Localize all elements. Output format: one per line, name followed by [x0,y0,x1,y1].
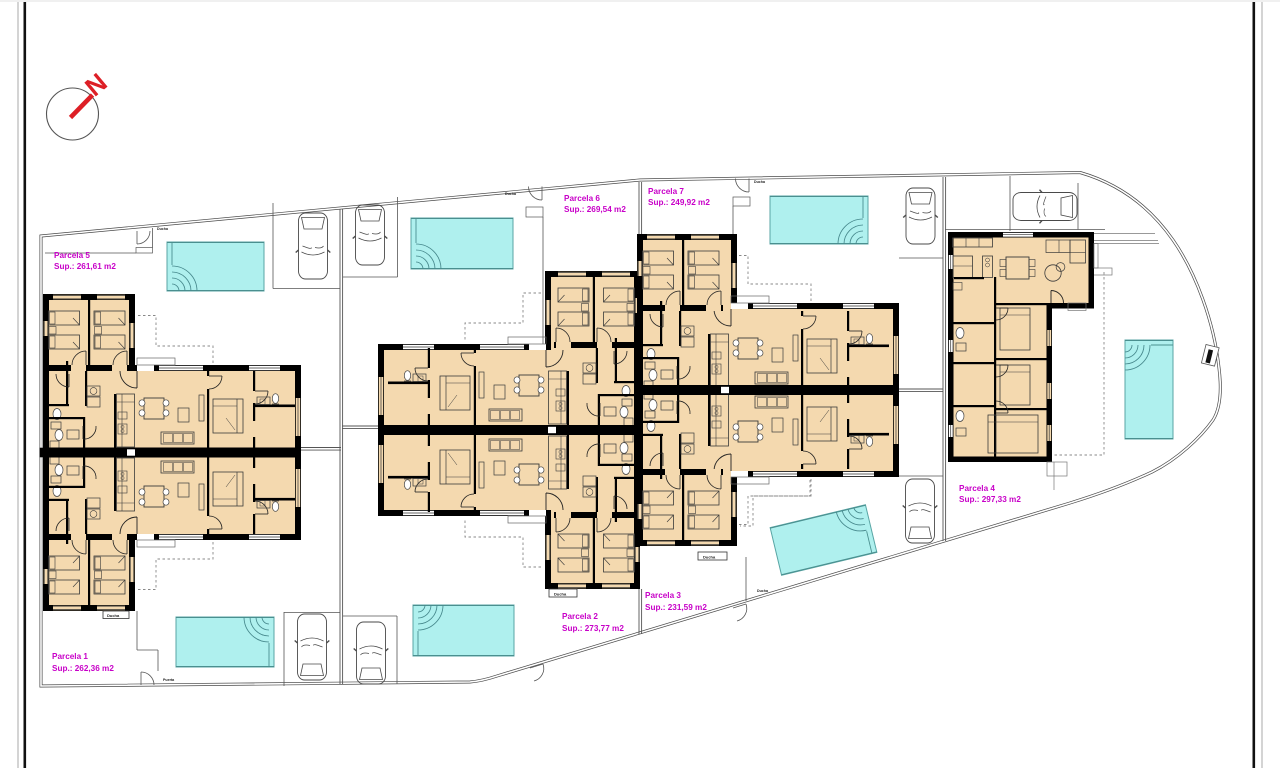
svg-text:Ducha: Ducha [757,589,769,593]
svg-text:Parcela 3: Parcela 3 [645,591,681,600]
svg-text:Sup.: 262,36 m2: Sup.: 262,36 m2 [52,664,114,673]
svg-text:Ducha: Ducha [754,180,766,184]
svg-text:Ducha: Ducha [554,592,567,597]
svg-text:Ducha: Ducha [157,227,169,231]
svg-text:Parcela 2: Parcela 2 [562,612,598,621]
svg-text:Sup.: 261,61 m2: Sup.: 261,61 m2 [54,262,116,271]
svg-text:Parcela 7: Parcela 7 [648,187,684,196]
svg-text:Sup.: 249,92 m2: Sup.: 249,92 m2 [648,198,710,207]
svg-text:Parcela 6: Parcela 6 [564,194,600,203]
svg-text:Parcela 5: Parcela 5 [54,251,90,260]
svg-text:Sup.: 231,59 m2: Sup.: 231,59 m2 [645,603,707,612]
svg-text:Parcela 4: Parcela 4 [959,484,995,493]
svg-text:Ducha: Ducha [703,555,716,560]
svg-text:Parcela 1: Parcela 1 [52,652,88,661]
svg-text:Ducha: Ducha [107,613,120,618]
svg-text:Ducha: Ducha [505,192,517,196]
svg-text:Sup.: 269,54 m2: Sup.: 269,54 m2 [564,205,626,214]
svg-text:Sup.: 297,33 m2: Sup.: 297,33 m2 [959,495,1021,504]
svg-text:Sup.: 273,77 m2: Sup.: 273,77 m2 [562,624,624,633]
svg-text:Puerta: Puerta [163,678,175,682]
